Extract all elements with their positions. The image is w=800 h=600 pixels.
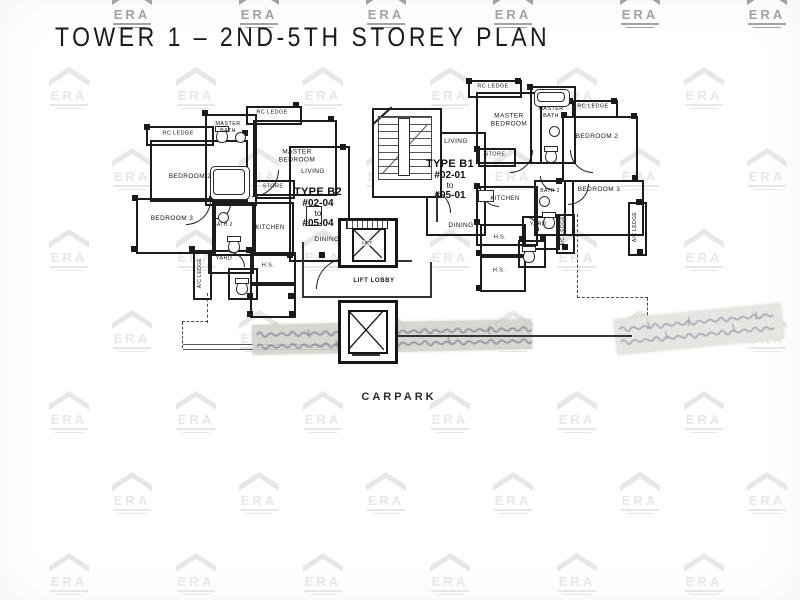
era-watermark-text: ERA bbox=[432, 251, 468, 264]
b2-living-label: LIVING bbox=[301, 168, 325, 176]
era-watermark-bar bbox=[113, 185, 151, 187]
b1-ac_ledge-label: A/C LEDGE bbox=[560, 216, 567, 246]
era-watermark-text: ERA bbox=[305, 413, 341, 426]
era-house-icon bbox=[682, 389, 726, 413]
era-watermark-bar bbox=[177, 104, 215, 106]
era-watermark: ERA bbox=[555, 389, 599, 433]
era-watermark-bar bbox=[685, 590, 723, 592]
b1-store-label: STORE bbox=[485, 151, 506, 158]
era-watermark: ERA bbox=[682, 551, 726, 595]
era-house-icon bbox=[301, 65, 345, 89]
floor-plan-page: TOWER 1 – 2ND-5TH STOREY PLAN ERAERAERAE… bbox=[0, 0, 800, 600]
era-watermark: ERA bbox=[301, 551, 345, 595]
b2-to_word: to bbox=[294, 209, 342, 218]
bathtub-inner bbox=[213, 169, 245, 195]
lift-lower-x-icon bbox=[348, 310, 384, 350]
wall-line bbox=[394, 335, 632, 337]
era-watermark-bar bbox=[182, 432, 210, 433]
era-watermark: ERA bbox=[364, 470, 408, 514]
b1-dining-label: DINING bbox=[448, 222, 473, 230]
b1-bedroom2-room bbox=[562, 116, 638, 182]
era-watermark-text: ERA bbox=[114, 332, 150, 345]
era-watermark-text: ERA bbox=[241, 494, 277, 507]
column-marker bbox=[474, 183, 480, 189]
era-watermark-bar bbox=[182, 108, 210, 109]
era-watermark: ERA bbox=[47, 551, 91, 595]
era-house-icon bbox=[110, 470, 154, 494]
era-watermark-text: ERA bbox=[432, 413, 468, 426]
b2-unit_to: #05-04 bbox=[294, 218, 342, 229]
era-watermark-bar bbox=[753, 351, 781, 352]
lift-door-mark bbox=[352, 354, 380, 356]
era-watermark-text: ERA bbox=[686, 251, 722, 264]
column-marker bbox=[476, 250, 482, 256]
era-watermark-bar bbox=[177, 428, 215, 430]
era-watermark-text: ERA bbox=[622, 494, 658, 507]
column-marker bbox=[527, 84, 533, 90]
era-watermark-text: ERA bbox=[51, 89, 87, 102]
wall-line bbox=[302, 296, 432, 298]
toilet-tank bbox=[544, 146, 558, 152]
era-watermark-bar bbox=[690, 270, 718, 271]
era-house-icon bbox=[301, 389, 345, 413]
era-house-icon bbox=[110, 146, 154, 170]
wall-line bbox=[302, 242, 304, 298]
era-house-icon bbox=[47, 227, 91, 251]
era-house-icon bbox=[428, 551, 472, 575]
era-watermark-bar bbox=[431, 266, 469, 268]
era-watermark-text: ERA bbox=[495, 494, 531, 507]
b1-ac_ledge_b-label: A/C LEDGE bbox=[632, 212, 639, 242]
era-watermark-bar bbox=[436, 270, 464, 271]
b2-dining-label: DINING bbox=[314, 236, 339, 244]
era-watermark-bar bbox=[685, 104, 723, 106]
column-marker bbox=[637, 249, 643, 255]
era-house-icon bbox=[237, 470, 281, 494]
column-marker bbox=[319, 252, 325, 258]
lift-upper-label: LIFT bbox=[361, 240, 374, 246]
era-watermark-bar bbox=[55, 432, 83, 433]
era-watermark-bar bbox=[626, 513, 654, 514]
lift-lobby-label: LIFT LOBBY bbox=[353, 278, 394, 284]
era-watermark-bar bbox=[621, 23, 659, 25]
era-watermark: ERA bbox=[555, 551, 599, 595]
b1-kitchen-label: KITCHEN bbox=[490, 196, 519, 204]
era-watermark-text: ERA bbox=[686, 89, 722, 102]
era-watermark-text: ERA bbox=[495, 8, 531, 21]
b1-bath2-label: BATH 2 bbox=[540, 188, 560, 195]
era-watermark-text: ERA bbox=[749, 8, 785, 21]
column-marker bbox=[474, 219, 480, 225]
column-marker bbox=[515, 78, 521, 84]
b1-rc_ledge_a-label: RC LEDGE bbox=[477, 83, 508, 90]
era-watermark: ERA bbox=[745, 470, 789, 514]
b2-store-label: STORE bbox=[263, 183, 284, 190]
era-watermark-bar bbox=[621, 509, 659, 511]
era-watermark-bar bbox=[50, 428, 88, 430]
column-marker bbox=[246, 247, 252, 253]
era-watermark-text: ERA bbox=[305, 89, 341, 102]
era-watermark: ERA bbox=[237, 470, 281, 514]
column-marker bbox=[474, 146, 480, 152]
b1-living-label: LIVING bbox=[444, 138, 468, 146]
column-marker bbox=[131, 246, 137, 252]
era-watermark: ERA bbox=[110, 146, 154, 190]
era-watermark: ERA bbox=[682, 65, 726, 109]
era-watermark-bar bbox=[558, 428, 596, 430]
era-watermark-bar bbox=[304, 590, 342, 592]
era-watermark: ERA bbox=[174, 551, 218, 595]
era-watermark-bar bbox=[55, 594, 83, 595]
era-watermark-text: ERA bbox=[368, 494, 404, 507]
toilet-tank bbox=[542, 212, 556, 218]
era-watermark-bar bbox=[55, 270, 83, 271]
era-watermark-text: ERA bbox=[51, 413, 87, 426]
era-watermark-bar bbox=[685, 266, 723, 268]
era-watermark: ERA bbox=[47, 389, 91, 433]
boundary-dash bbox=[182, 321, 208, 322]
era-house-icon bbox=[555, 389, 599, 413]
era-watermark-text: ERA bbox=[432, 89, 468, 102]
b2-type_name: TYPE B2 bbox=[294, 186, 342, 198]
era-house-icon bbox=[682, 551, 726, 575]
basin-fixture bbox=[539, 196, 550, 207]
era-watermark: ERA bbox=[745, 0, 789, 28]
era-watermark-bar bbox=[753, 27, 781, 28]
era-house-icon bbox=[110, 308, 154, 332]
column-marker bbox=[328, 116, 334, 122]
b1-yard-label: YARD bbox=[530, 221, 546, 228]
era-house-icon bbox=[174, 389, 218, 413]
era-house-icon bbox=[682, 65, 726, 89]
b2-yard-label: YARD bbox=[216, 255, 232, 262]
b2-rc_ledge_a-label: RC LEDGE bbox=[162, 130, 193, 137]
era-watermark-text: ERA bbox=[749, 170, 785, 183]
column-marker bbox=[631, 113, 637, 119]
toilet-tank bbox=[235, 278, 249, 284]
era-watermark-bar bbox=[626, 27, 654, 28]
era-watermark-bar bbox=[113, 509, 151, 511]
era-house-icon bbox=[491, 470, 535, 494]
b1-unit_from: #02-01 bbox=[426, 170, 474, 181]
b2-rc_ledge_b-label: RC LEDGE bbox=[256, 109, 287, 116]
column-marker bbox=[611, 98, 617, 104]
b1-type-label: TYPE B1#02-01to#05-01 bbox=[426, 158, 474, 201]
era-house-icon bbox=[47, 65, 91, 89]
era-watermark-text: ERA bbox=[114, 8, 150, 21]
b1-hs_a-label: H.S. bbox=[494, 234, 506, 241]
column-marker bbox=[636, 199, 642, 205]
era-watermark-bar bbox=[748, 509, 786, 511]
era-watermark-bar bbox=[309, 594, 337, 595]
era-watermark-text: ERA bbox=[178, 89, 214, 102]
era-watermark-bar bbox=[118, 513, 146, 514]
era-watermark: ERA bbox=[618, 470, 662, 514]
era-watermark-text: ERA bbox=[432, 575, 468, 588]
b1-unit_to: #05-01 bbox=[426, 190, 474, 201]
era-watermark-bar bbox=[372, 513, 400, 514]
boundary-dash bbox=[182, 322, 183, 348]
era-house-icon bbox=[174, 551, 218, 575]
era-watermark-bar bbox=[118, 351, 146, 352]
b2-kitchen-label: KITCHEN bbox=[255, 225, 284, 233]
era-house-icon bbox=[47, 551, 91, 575]
era-watermark-bar bbox=[748, 185, 786, 187]
b2-bedroom2-label: BEDROOM 2 bbox=[169, 173, 212, 181]
column-marker bbox=[556, 178, 562, 184]
b2-unit_from: #02-04 bbox=[294, 198, 342, 209]
era-watermark-bar bbox=[431, 104, 469, 106]
era-watermark-bar bbox=[304, 428, 342, 430]
era-house-icon bbox=[555, 551, 599, 575]
era-watermark-bar bbox=[748, 347, 786, 349]
era-house-icon bbox=[745, 470, 789, 494]
bathtub-inner bbox=[537, 92, 565, 102]
wall-line bbox=[430, 262, 432, 298]
era-watermark-bar bbox=[431, 428, 469, 430]
era-watermark-bar bbox=[436, 432, 464, 433]
column-marker bbox=[247, 311, 253, 317]
era-watermark-bar bbox=[563, 594, 591, 595]
era-watermark-text: ERA bbox=[241, 8, 277, 21]
era-watermark-bar bbox=[685, 428, 723, 430]
era-watermark-bar bbox=[304, 104, 342, 106]
column-marker bbox=[289, 311, 295, 317]
era-house-icon bbox=[301, 551, 345, 575]
column-marker bbox=[247, 293, 253, 299]
era-watermark: ERA bbox=[110, 470, 154, 514]
b2-master_bedroom-label: MASTER BEDROOM bbox=[273, 149, 321, 166]
b2-hs-label: H.S. bbox=[262, 262, 274, 269]
era-watermark-text: ERA bbox=[686, 575, 722, 588]
era-watermark: ERA bbox=[428, 65, 472, 109]
era-watermark-bar bbox=[753, 513, 781, 514]
b2-master_bath-label: MASTER BATH bbox=[213, 121, 243, 135]
era-watermark: ERA bbox=[618, 0, 662, 28]
era-house-icon bbox=[428, 65, 472, 89]
era-watermark: ERA bbox=[174, 389, 218, 433]
era-watermark-text: ERA bbox=[686, 413, 722, 426]
era-watermark-bar bbox=[558, 590, 596, 592]
era-watermark-bar bbox=[748, 23, 786, 25]
column-marker bbox=[540, 236, 546, 242]
era-watermark-text: ERA bbox=[305, 575, 341, 588]
era-watermark-bar bbox=[50, 590, 88, 592]
era-watermark-bar bbox=[690, 594, 718, 595]
basin-fixture bbox=[549, 126, 560, 137]
b1-bedroom2-label: BEDROOM 2 bbox=[576, 133, 619, 141]
era-watermark-text: ERA bbox=[114, 494, 150, 507]
era-watermark-bar bbox=[50, 266, 88, 268]
b1-master_bath-label: MASTER BATH bbox=[536, 106, 566, 120]
era-watermark-text: ERA bbox=[368, 8, 404, 21]
era-watermark-bar bbox=[563, 432, 591, 433]
b1-bedroom3-label: BEDROOM 3 bbox=[578, 186, 621, 194]
era-watermark-text: ERA bbox=[622, 8, 658, 21]
era-watermark-bar bbox=[431, 590, 469, 592]
era-watermark: ERA bbox=[491, 470, 535, 514]
era-watermark-bar bbox=[309, 108, 337, 109]
era-watermark-text: ERA bbox=[559, 575, 595, 588]
b2-ac_ledge-label: A/C LEDGE bbox=[197, 258, 204, 288]
boundary-dash bbox=[577, 297, 648, 298]
toilet-tank bbox=[522, 246, 536, 252]
era-watermark-bar bbox=[690, 108, 718, 109]
era-house-icon bbox=[682, 227, 726, 251]
column-marker bbox=[132, 195, 138, 201]
era-watermark-text: ERA bbox=[114, 170, 150, 183]
b1-type_name: TYPE B1 bbox=[426, 158, 474, 170]
stair-newel bbox=[398, 118, 410, 176]
era-house-icon bbox=[618, 470, 662, 494]
era-watermark-bar bbox=[245, 513, 273, 514]
era-watermark-text: ERA bbox=[178, 413, 214, 426]
era-watermark: ERA bbox=[174, 65, 218, 109]
b1-master_bedroom-label: MASTER BEDROOM bbox=[485, 113, 533, 130]
era-watermark-bar bbox=[50, 104, 88, 106]
era-house-icon bbox=[364, 470, 408, 494]
column-marker bbox=[189, 246, 195, 252]
page-title: TOWER 1 – 2ND-5TH STOREY PLAN bbox=[55, 22, 550, 53]
b1-to_word: to bbox=[426, 181, 474, 190]
era-watermark: ERA bbox=[47, 65, 91, 109]
column-marker bbox=[288, 293, 294, 299]
era-house-icon bbox=[47, 389, 91, 413]
b2-bedroom3-label: BEDROOM 3 bbox=[151, 215, 194, 223]
column-marker bbox=[476, 285, 482, 291]
era-watermark-bar bbox=[309, 432, 337, 433]
era-watermark: ERA bbox=[110, 308, 154, 352]
era-watermark-text: ERA bbox=[178, 575, 214, 588]
column-marker bbox=[202, 110, 208, 116]
toilet-tank bbox=[227, 236, 241, 242]
era-watermark-text: ERA bbox=[749, 494, 785, 507]
column-marker bbox=[287, 252, 293, 258]
era-watermark: ERA bbox=[682, 389, 726, 433]
era-watermark: ERA bbox=[745, 146, 789, 190]
b2-type-label: TYPE B2#02-04to#05-04 bbox=[294, 186, 342, 229]
b2-bath2-label: BATH 2 bbox=[213, 222, 233, 229]
column-marker bbox=[632, 175, 638, 181]
era-watermark-bar bbox=[367, 509, 405, 511]
era-watermark: ERA bbox=[301, 389, 345, 433]
era-watermark: ERA bbox=[428, 551, 472, 595]
era-watermark-bar bbox=[499, 513, 527, 514]
era-watermark-bar bbox=[113, 347, 151, 349]
column-marker bbox=[466, 78, 472, 84]
column-marker bbox=[293, 102, 299, 108]
era-watermark: ERA bbox=[682, 227, 726, 271]
era-watermark: ERA bbox=[301, 65, 345, 109]
era-watermark-bar bbox=[753, 189, 781, 190]
era-watermark-bar bbox=[177, 590, 215, 592]
era-watermark-bar bbox=[240, 509, 278, 511]
era-house-icon bbox=[174, 65, 218, 89]
era-watermark-bar bbox=[55, 108, 83, 109]
era-watermark-bar bbox=[182, 594, 210, 595]
era-house-icon bbox=[745, 146, 789, 170]
era-watermark-text: ERA bbox=[559, 413, 595, 426]
column-marker bbox=[519, 236, 525, 242]
era-watermark-bar bbox=[118, 189, 146, 190]
era-watermark-text: ERA bbox=[51, 251, 87, 264]
b2-bedroom3-room bbox=[136, 198, 216, 254]
b1-rc_ledge_b-label: RC LEDGE bbox=[577, 103, 608, 110]
era-watermark-bar bbox=[436, 594, 464, 595]
carpark-label: CARPARK bbox=[361, 391, 436, 403]
era-watermark-bar bbox=[690, 432, 718, 433]
era-watermark: ERA bbox=[47, 227, 91, 271]
column-marker bbox=[144, 124, 150, 130]
era-watermark-text: ERA bbox=[51, 575, 87, 588]
column-marker bbox=[340, 144, 346, 150]
b1-hs_b-label: H.S. bbox=[493, 267, 505, 274]
era-watermark-bar bbox=[494, 509, 532, 511]
